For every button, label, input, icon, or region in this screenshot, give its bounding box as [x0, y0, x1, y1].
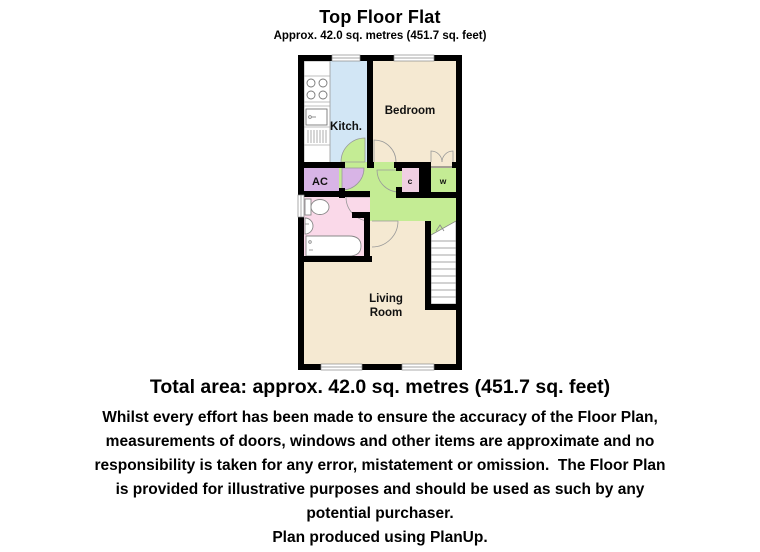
floor-plan-drawing: Kitch. Bedroom AC c w Living Room [297, 54, 463, 372]
bathtub-icon [306, 236, 361, 256]
toilet-icon [305, 199, 329, 215]
page-subtitle: Approx. 42.0 sq. metres (451.7 sq. feet) [0, 30, 760, 42]
airing-cupboard-label: AC [312, 176, 328, 188]
plan-header: Top Floor Flat Approx. 42.0 sq. metres (… [0, 7, 760, 42]
disclaimer-text: Whilst every effort has been made to ens… [0, 406, 760, 550]
disclaimer-line: potential purchaser. [0, 502, 760, 526]
wardrobe-label: w [439, 176, 447, 186]
disclaimer-line: measurements of doors, windows and other… [0, 430, 760, 454]
staircase [431, 221, 456, 304]
bedroom-label: Bedroom [385, 105, 435, 117]
floor-plan: Kitch. Bedroom AC c w Living Room [297, 54, 463, 372]
living-room-label-line2: Room [370, 307, 403, 319]
kitchen-label: Kitch. [330, 121, 362, 133]
drainer-icon [308, 130, 326, 143]
total-area-caption: Total area: approx. 42.0 sq. metres (451… [0, 376, 760, 399]
living-room-label-line1: Living [369, 293, 403, 305]
disclaimer-line: responsibility is taken for any error, m… [0, 454, 760, 478]
disclaimer-line: is provided for illustrative purposes an… [0, 478, 760, 502]
cupboard-label: c [408, 176, 413, 186]
planup-credit: Plan produced using PlanUp. [0, 526, 760, 550]
disclaimer-line: Whilst every effort has been made to ens… [0, 406, 760, 430]
page-title: Top Floor Flat [0, 7, 760, 28]
kitchen-sink-icon [306, 109, 327, 125]
